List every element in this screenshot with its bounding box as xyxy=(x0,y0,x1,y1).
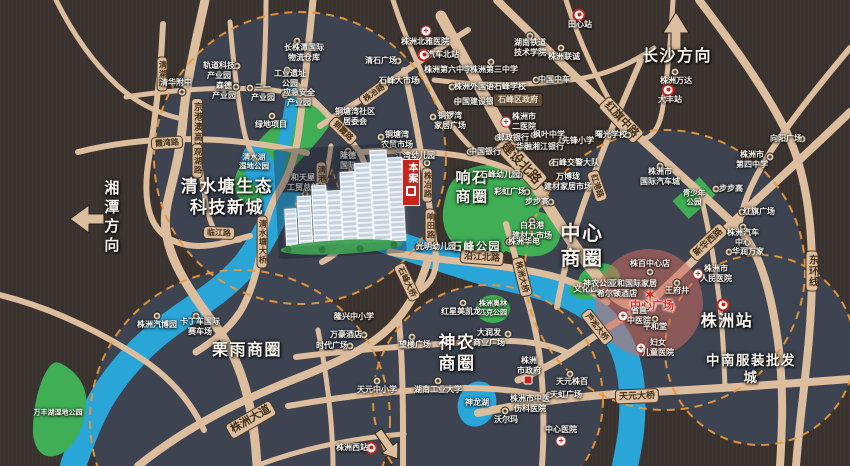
icon-shidai xyxy=(346,342,355,351)
icon-no6 xyxy=(425,66,434,75)
poi-shizhengfu: 株洲 市政府 xyxy=(517,356,541,376)
icon-dafeng-station xyxy=(662,84,675,97)
icon-xiangyang xyxy=(798,135,807,144)
poi-no4-school: 株洲市 第四中学 xyxy=(736,150,768,170)
icon-tianxin-station xyxy=(573,9,586,22)
label-zhongnan-fuzhuang: 中南服装批发城 xyxy=(702,353,801,387)
poi-shifeng-damarket: 石峰大市场 xyxy=(379,76,419,86)
icon-caihong xyxy=(523,188,532,197)
poi-shifeng-gov: 石峰区政府 xyxy=(493,93,543,107)
road-zhuzhou-avenue: 株洲大道 xyxy=(224,399,278,440)
icon-huarong xyxy=(516,143,525,152)
icon-jianshe-bank xyxy=(453,98,462,107)
poi-qiche-center: 株洲汽车 中心 xyxy=(727,228,759,248)
zhuzhou-location-map: 本案 清水塘生态 科技新城栗雨商圈神农 商圈中心 商圈响石 商圈石峰公园中南服装… xyxy=(0,0,850,466)
label-shennong-circle: 神农 商圈 xyxy=(439,332,476,375)
icon-bubugao-n xyxy=(547,198,556,207)
poi-longde-intl: 隆德 国际 xyxy=(340,151,356,171)
icon-qichecheng xyxy=(656,162,665,171)
poi-pinghetang: 平和堂 xyxy=(643,322,667,332)
poi-tianyuan-school: 天元中小学 xyxy=(357,385,397,395)
icon-qiche-beizhan xyxy=(418,49,431,62)
icon-zhubai xyxy=(646,268,655,277)
label-shifeng-park: 石峰公园 xyxy=(451,241,501,255)
poi-zhubai: 株百中心店 xyxy=(630,259,670,269)
poi-qinghua-school: 清华附中 xyxy=(160,78,192,88)
road-guanhu: 观湖路 xyxy=(192,144,203,179)
poi-zhongche: 中国中车 xyxy=(538,75,570,85)
label-zhongxin-circle: 中心 商圈 xyxy=(561,222,604,272)
poi-shuguang-school: 曙光学校 xyxy=(595,130,627,140)
poi-qingshi-plaza: 清石广场 xyxy=(365,56,397,66)
icon-wanhao xyxy=(360,331,369,340)
poi-ttw-nongmao: 铜塘湾 农贸市场 xyxy=(381,130,413,150)
poi-xianfeng-school: 先锋小学 xyxy=(562,136,594,146)
road-qinghu: 清湖路 xyxy=(157,57,168,92)
poi-kadingche: 卡丁车国际 赛车场 xyxy=(180,317,220,337)
label-liyu-circle: 栗雨商圈 xyxy=(212,341,282,361)
label-xiangshi-circle: 响石 商圈 xyxy=(455,169,488,207)
poi-caihong-plaza: 彩虹广场 xyxy=(494,187,526,197)
poi-liancheng: 株洲联诚 xyxy=(548,52,580,62)
poi-qibo-park: 株洲汽博园 xyxy=(137,320,177,330)
icon-zhongxin-hospital xyxy=(556,436,567,447)
poi-wanhao-hotel: 万豪酒店 xyxy=(330,330,362,340)
poi-zhongyi-hospital: 株洲市中医 伤科医院 xyxy=(510,394,550,414)
icon-lvdi xyxy=(268,112,277,121)
poi-no3-school: 株洲第三中学 xyxy=(470,65,518,75)
road-xinhua-west: 新华西路 xyxy=(687,222,729,263)
icon-zhongche xyxy=(532,76,541,85)
label-baoshui-center: 铜塘湾保税 物流中心 xyxy=(341,234,376,252)
poi-shifeng-kindergarten: 石峰幼儿园 xyxy=(480,170,520,180)
road-tianyuan-bridge: 天元大桥 xyxy=(615,388,659,404)
label-aolinpike-park: 株洲奥林 匹克公园 xyxy=(479,300,507,318)
poi-sende-park: 森德 产业园 xyxy=(212,81,236,101)
icon-woerma xyxy=(501,407,510,416)
icon-qinghua xyxy=(178,88,187,97)
poi-dafeng-station: 大丰站 xyxy=(658,95,682,105)
icon-baishigang xyxy=(528,217,537,226)
poi-huarun: 华润万家 xyxy=(732,247,764,257)
road-xiangtian: 响田路 xyxy=(425,209,436,244)
icon-longde xyxy=(344,147,353,156)
label-zhongxin-plaza: 中心广场 xyxy=(630,300,674,314)
icon-er-hospital xyxy=(501,117,512,128)
poi-yahe-home: 亚和国际家居 xyxy=(609,279,657,289)
icon-huadian xyxy=(505,238,514,247)
icon-tianyuan-school xyxy=(373,377,382,386)
icon-xierdun xyxy=(597,290,606,299)
label-qingshaonian-park: 青少年 公园 xyxy=(683,189,706,208)
label-xiangtan-direction: 湘潭方向 xyxy=(101,180,120,256)
icon-shengzhi-hospital xyxy=(618,311,629,322)
poi-darunfa: 大润发 商业广场 xyxy=(473,328,505,348)
poi-guoji-qichecheng: 株洲市 国际汽车城 xyxy=(640,167,680,187)
icon-wanda xyxy=(671,68,680,77)
label-zhuzhou-station: 株洲站 xyxy=(701,312,754,332)
road-jianshe-north: 建设北路 xyxy=(493,134,549,192)
poi-xizhan: 株洲西站 xyxy=(336,443,368,453)
icon-qibo xyxy=(153,312,162,321)
poi-tongluowan-home: 铜锣湾 家居广场 xyxy=(434,111,466,131)
poi-youzheng-bank: 邮政银行 xyxy=(497,133,529,143)
poi-xierdun-hotel: 希尔顿酒店 xyxy=(597,289,637,299)
icon-wanglou xyxy=(408,333,417,342)
poi-bubugao-east: 步步高 xyxy=(719,184,743,194)
icon-sanyi xyxy=(246,84,255,93)
icon-darunfa xyxy=(504,330,513,339)
poi-tianhong-plaza: 天虹广场 xyxy=(550,390,582,400)
icon-renmin-hospital xyxy=(693,269,704,280)
poi-tianyuan-zhubai: 天元株百 xyxy=(556,377,588,387)
icon-meikailong xyxy=(459,299,468,308)
icon-no3 xyxy=(487,58,496,67)
poi-funv-hospital: 妇女 儿童医院 xyxy=(642,338,674,358)
icon-damarket xyxy=(413,77,422,86)
road-linjiang: 临江路 xyxy=(203,226,235,240)
icon-pinghetang xyxy=(651,315,660,324)
icon-yahe xyxy=(630,288,639,297)
poi-beiya-hospital: 株洲北雅医院 xyxy=(401,37,449,47)
road-honggang: 红港路 xyxy=(586,169,609,204)
icon-tiedao xyxy=(526,32,535,41)
poi-gongye-daxue: 湖南工业大学 xyxy=(414,385,462,395)
poi-shidai-plaza: 时代广场 xyxy=(316,341,348,351)
road-yanjiang-north: 沿江北路 xyxy=(460,248,505,266)
poi-changzhutan: 长株潭国际 物流仓库 xyxy=(284,43,324,63)
icon-zhongguo-bank xyxy=(466,148,475,157)
poi-xiangyang-plaza: 向阳广场 xyxy=(770,134,802,144)
poi-bubugao-north: 步步高 xyxy=(525,197,549,207)
road-hongqi-middle: 红旗中路 xyxy=(597,95,645,145)
road-qingshuitang-bridge: 清水塘大桥 xyxy=(257,216,268,269)
label-shennong-park: 神农公园 xyxy=(583,279,615,289)
label-changsha-direction: 长沙方向 xyxy=(642,47,712,67)
poi-tianxin-station: 田心站 xyxy=(568,20,592,30)
icon-shizhengfu xyxy=(524,376,533,385)
label-wenhuayuan: 文化园 xyxy=(573,284,599,295)
icon-sende xyxy=(232,83,241,92)
icon-beiya-hospital xyxy=(421,26,432,37)
poi-qiche-beizhan: 汽车北站 xyxy=(427,50,459,60)
road-donghuan-line: 东环线 xyxy=(806,251,819,292)
icon-guidao xyxy=(233,62,242,71)
poi-wanglou-plaza: 望楼广场 xyxy=(399,340,431,350)
icon-funv-hospital xyxy=(636,343,647,354)
icon-youzheng xyxy=(494,134,503,143)
poi-lvdi-project: 绿地项目 xyxy=(255,120,287,130)
poi-waiguoyu-school: 株洲外国语石峰学校 xyxy=(454,82,526,92)
road-qingxia: 清霞路 xyxy=(302,202,336,223)
icon-sf-kindergarten xyxy=(515,171,524,180)
icon-gongye-yizhi xyxy=(283,66,292,75)
icon-ttw-nongmao xyxy=(377,133,386,142)
icon-waiguoyu xyxy=(448,83,457,92)
icon-jiangwan xyxy=(423,159,432,168)
road-xiawan: 霞湾路 xyxy=(151,135,184,150)
poi-longxing-school: 隆兴中小学 xyxy=(334,312,374,322)
road-tongxia: 铜霞路 xyxy=(327,115,359,147)
poi-guidao-park: 轨道科技 产业园 xyxy=(203,61,235,81)
road-lusong-bridge: 芦淞大桥 xyxy=(579,307,614,347)
poi-wangfujing: 王府井 xyxy=(665,286,689,296)
poi-shengzhi-hospital: 省直 中医院 xyxy=(627,306,651,326)
poi-er-hospital: 株洲市 二医院 xyxy=(512,112,536,132)
icon-huarun xyxy=(725,248,734,257)
icon-kadingche xyxy=(192,312,201,321)
poi-jiaojing: 石峰交警大队 xyxy=(551,158,599,168)
poi-baishigang: 白石港 建材大市场 xyxy=(512,221,552,241)
poi-hongxing-meikailong: 红星美凯龙 xyxy=(441,307,481,317)
icon-qingshi xyxy=(394,57,403,66)
icon-xizhan-station xyxy=(365,442,378,455)
label-haiguan-baoshui: 株洲海关 保税仓 xyxy=(299,227,327,245)
label-shenlonghu: 神龙湖 xyxy=(465,398,489,408)
icon-guangming xyxy=(415,243,424,252)
poi-guangming-kindergarten: 光明幼儿园 xyxy=(416,242,456,252)
poi-sanyi-park: 三一 产业园 xyxy=(251,83,275,103)
icon-wangfujing xyxy=(673,279,682,288)
road-yujiaping: 喻家坪路 xyxy=(347,164,367,204)
poi-zhongxin-hospital: 中心医院 xyxy=(545,425,577,435)
road-qinggang: 清港路 xyxy=(316,162,327,197)
road-zhuzhou-bridge: 株洲大桥 xyxy=(511,256,533,298)
icon-gongye-daxue xyxy=(434,377,443,386)
poi-woerma: 沃尔玛 xyxy=(494,415,518,425)
icon-hetianwu xyxy=(301,190,310,199)
icon-changzhutan xyxy=(293,37,302,46)
icon-liancheng xyxy=(557,44,566,53)
poi-huadian: 株洲华电 xyxy=(508,237,540,247)
poi-ttw-juweihui: 铜塘湾社区 居委会 xyxy=(335,107,375,127)
poi-yingji-park: 应急安全 产业园 xyxy=(283,88,315,108)
icon-qiche-center xyxy=(739,223,748,232)
road-shifeng-bridge: 石峰大桥 xyxy=(392,261,421,303)
icon-no4 xyxy=(766,153,775,162)
icon-tongluowan xyxy=(429,113,438,122)
poi-hongqi-plaza: 红旗广场 xyxy=(743,207,775,217)
poi-hetianwu: 和天屋 工贸总部 xyxy=(287,173,319,193)
icon-xianfeng xyxy=(558,137,567,146)
icon-longxing xyxy=(333,313,342,322)
road-zhuye-diag: 株冶路 xyxy=(357,78,391,107)
poi-tiedao-college: 湖南铁道 技术学院 xyxy=(514,38,546,58)
poi-renmin-hospital: 株洲市 人民医院 xyxy=(700,264,732,284)
icon-tianyuan-zhubai xyxy=(566,370,575,379)
icon-jiaojing xyxy=(548,159,557,168)
road-jinggangao: 京港澳高速 xyxy=(191,98,203,156)
icon-yingji xyxy=(281,91,290,100)
label-qingshuitang-newcity: 清水塘生态 科技新城 xyxy=(181,176,274,219)
label-wanfenghu-wetland: 万丰湖湿地公园 xyxy=(34,410,83,419)
poi-no6-school: 株洲第六中学 xyxy=(424,65,472,75)
poi-wanbolong: 万博珑 建材家居市场 xyxy=(544,172,592,192)
icon-zhuzhou-station xyxy=(717,299,730,312)
poi-zhongguo-bank: 中国银行 xyxy=(469,147,501,157)
map-labels-layer: 清水塘生态 科技新城栗雨商圈神农 商圈中心 商圈响石 商圈石峰公园中南服装批发城… xyxy=(0,0,850,466)
poi-jiangwan-kindergarten: 江湾幼儿园 xyxy=(395,151,435,161)
poi-wanda: 株洲万达 xyxy=(660,76,692,86)
icon-zhongxin-plaza-star xyxy=(640,286,660,306)
road-zhuye-vert: 株冶路 xyxy=(422,168,433,203)
icon-tianhong xyxy=(545,391,554,400)
poi-jianshe-bank: 中国建设银行 xyxy=(454,97,502,107)
icon-shuguang xyxy=(624,131,633,140)
poi-gongye-yizhi: 工业遗址 公园 xyxy=(274,69,306,89)
icon-hongqi-plaza xyxy=(738,208,747,217)
icon-fengye xyxy=(530,131,539,140)
label-qingshuihu-wetland: 清水湖 湿地公园 xyxy=(239,153,269,172)
icon-bubugao-e xyxy=(712,185,721,194)
poi-huarong-bank: 华融湘江银行 xyxy=(516,142,564,152)
poi-fengye-school: 枫叶中学 xyxy=(533,130,565,140)
